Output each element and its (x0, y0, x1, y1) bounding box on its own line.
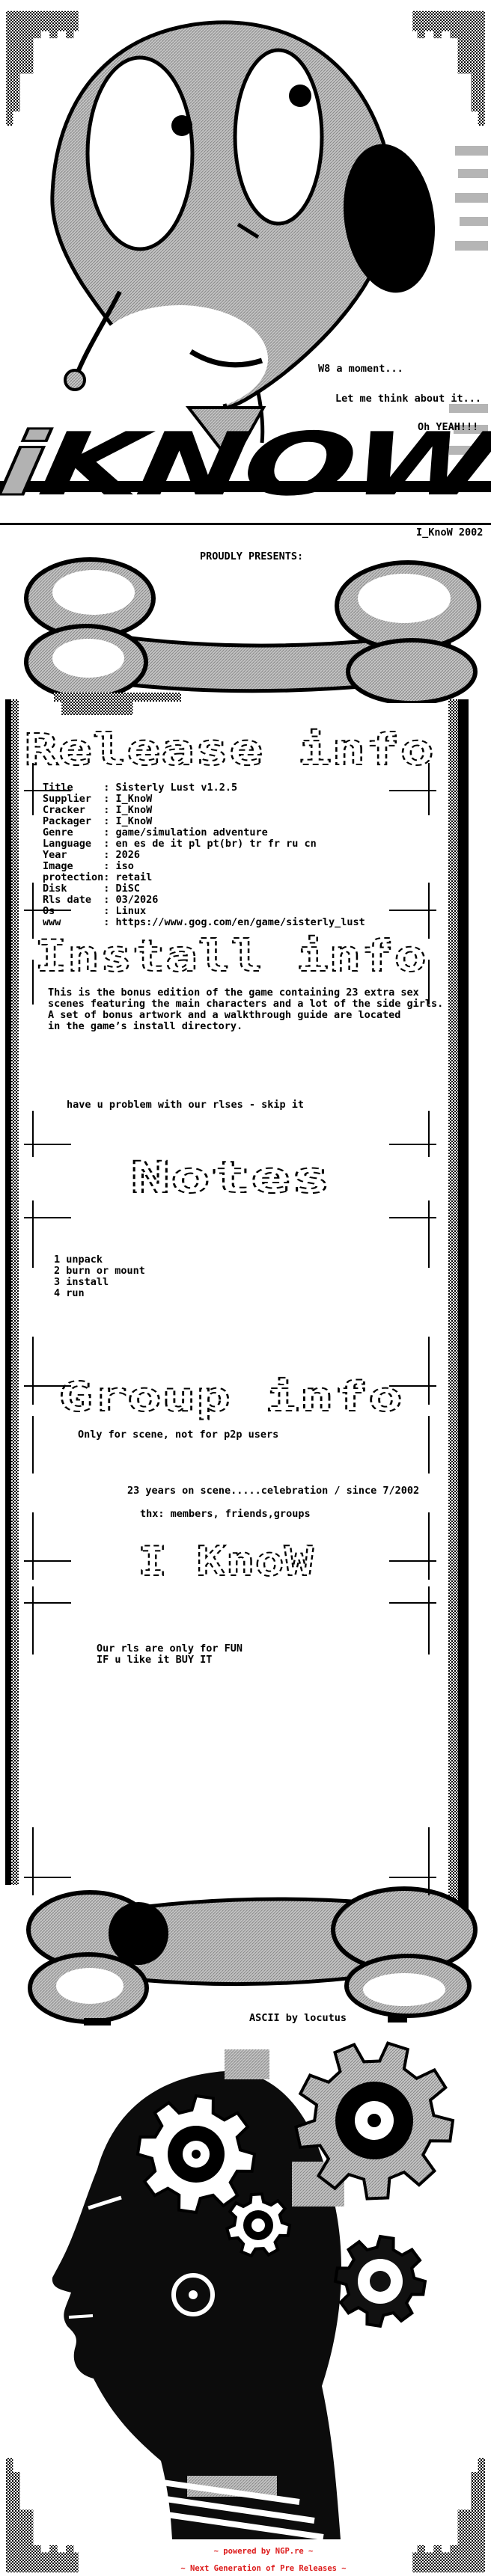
cross-mark (389, 1217, 436, 1218)
hand (65, 370, 85, 390)
release-table: Title : Sisterly Lust v1.2.5 Supplier : … (43, 782, 365, 928)
cross-mark (24, 910, 71, 911)
cross-mark (24, 1602, 71, 1604)
cross-mark (32, 1200, 34, 1268)
cross-mark (428, 1111, 430, 1157)
scroll-border-left-dither (11, 699, 19, 1885)
cross-mark (32, 1416, 34, 1473)
cross-mark (428, 763, 430, 815)
svg-text:Install info: Install info (34, 932, 427, 981)
mouth-white-line (69, 2316, 93, 2317)
cross-mark (428, 960, 430, 1005)
cross-mark (389, 1560, 436, 1562)
gear-icon (192, 2150, 201, 2159)
cross-mark (428, 1827, 430, 1895)
notes-steps: 1 unpack 2 burn or mount 3 install 4 run (54, 1254, 145, 1299)
cross-mark (389, 790, 436, 791)
logo-credit: I_KnoW 2002 (416, 527, 483, 539)
cross-mark (389, 1144, 436, 1145)
cross-mark (24, 1385, 71, 1387)
cross-mark (32, 763, 34, 815)
cross-mark (32, 1512, 34, 1580)
group-line-thx: thx: members, friends,groups (140, 1509, 311, 1520)
group-line-scene: Only for scene, not for p2p users (78, 1429, 278, 1441)
chin-highlight (91, 305, 268, 413)
cross-mark (428, 1586, 430, 1655)
cross-mark (32, 960, 34, 1005)
cross-mark (32, 1337, 34, 1405)
cross-mark (389, 1385, 436, 1387)
cross-mark (24, 790, 71, 791)
cross-mark (24, 1217, 71, 1218)
svg-text:Group info: Group info (58, 1375, 403, 1420)
svg-text:I KnoW: I KnoW (138, 1539, 314, 1585)
svg-text:Release info: Release info (24, 726, 434, 775)
install-info-header: Install info (31, 932, 433, 984)
group-line-years: 23 years on scene.....celebration / sinc… (127, 1485, 419, 1497)
gear-icon (370, 2271, 391, 2292)
cross-mark (428, 1200, 430, 1268)
cross-mark (32, 1827, 34, 1895)
scroll-bottom-art (0, 1840, 491, 2031)
footer-ngp-tagline: ~ Next Generation of Pre Releases ~ (180, 2564, 346, 2573)
cross-mark (32, 1586, 34, 1655)
gear-icon (368, 2114, 381, 2127)
iknow-header: I KnoW (135, 1539, 320, 1587)
scroll-border-right-dither (448, 699, 458, 1911)
nfo-page: W8 a moment... Let me think about it... … (0, 0, 491, 2576)
cross-mark (428, 1416, 430, 1473)
speech-line-2: Let me think about it... (335, 393, 481, 405)
right-eye (235, 50, 322, 224)
cross-mark (24, 1144, 71, 1145)
cross-mark (389, 1877, 436, 1878)
gear-icon (251, 2218, 265, 2232)
bone-shadow-blob (54, 693, 181, 715)
iknow-logo: iKNOW (0, 420, 491, 510)
cross-mark (24, 1560, 71, 1562)
left-pupil (171, 115, 192, 136)
cross-mark (389, 1602, 436, 1604)
right-pupil (289, 85, 311, 107)
cross-mark (24, 1877, 71, 1878)
cross-mark (32, 1111, 34, 1157)
motion-stripes (449, 146, 488, 455)
scroll-border-left-bar (5, 699, 11, 1885)
install-note: have u problem with our rlses - skip it (67, 1100, 304, 1111)
scroll-border-right-bar (458, 699, 469, 1911)
svg-text:Notes: Notes (130, 1153, 331, 1203)
install-text: This is the bonus edition of the game co… (48, 987, 443, 1032)
release-info-header: Release info (21, 726, 442, 778)
thinker-gears-art (0, 2012, 491, 2547)
speech-line-1: W8 a moment... (318, 364, 403, 375)
footer-powered-by: ~ powered by NGP.re ~ (214, 2547, 314, 2556)
scroll-top-art (0, 553, 491, 703)
cross-mark (389, 910, 436, 911)
group-info-header: Group info (55, 1375, 409, 1423)
logo-underline (0, 523, 491, 525)
logo-letters-know: KNOW (34, 414, 491, 515)
left-eye (88, 58, 192, 249)
cross-mark (428, 1337, 430, 1405)
iknow-lines: Our rls are only for FUN IF u like it BU… (97, 1643, 243, 1666)
notes-header: Notes (127, 1153, 338, 1206)
cross-mark (428, 1512, 430, 1580)
